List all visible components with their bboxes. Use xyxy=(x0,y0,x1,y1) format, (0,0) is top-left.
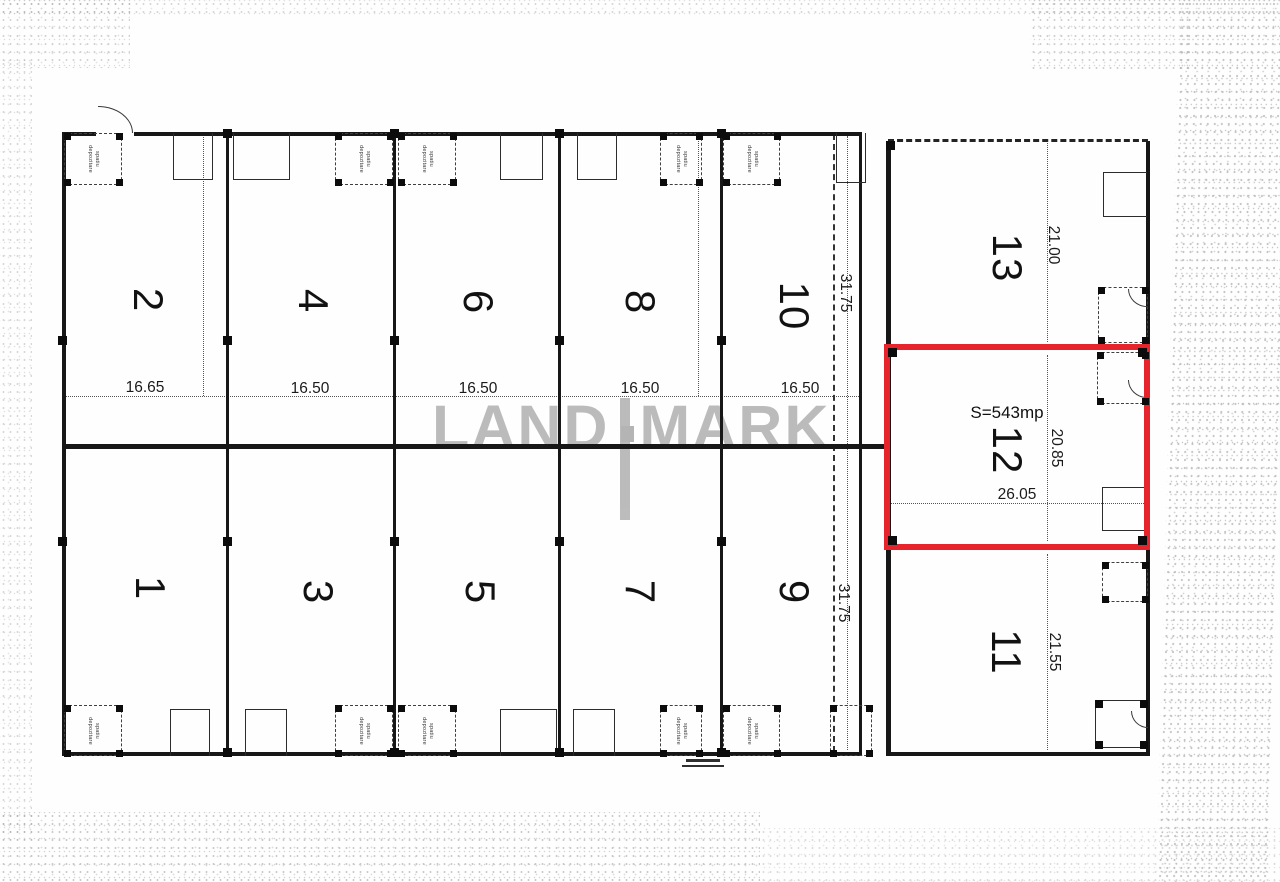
column-pillar xyxy=(390,336,399,345)
watermark-word-mark: MARK xyxy=(639,392,830,462)
storage-box: spatiudepozitare xyxy=(398,705,456,756)
storage-box xyxy=(830,705,872,756)
unit-label-4: 4 xyxy=(289,289,337,313)
wall-segment xyxy=(62,444,886,449)
column-pillar xyxy=(717,537,726,546)
column-pillar xyxy=(1142,562,1149,569)
unit-label-7: 7 xyxy=(616,580,664,604)
storage-box-tiny-label: spatiudepozitare xyxy=(674,145,688,173)
dim-bay-width-3: 16.50 xyxy=(459,380,498,398)
dimension-line-vertical xyxy=(847,136,848,750)
column-pillar xyxy=(64,133,71,140)
column-pillar xyxy=(450,179,457,186)
column-pillar xyxy=(450,750,457,757)
unit-label-1: 1 xyxy=(126,576,174,600)
landmark-watermark: LAND MARK xyxy=(432,392,830,520)
door-recess-box xyxy=(233,133,290,180)
column-pillar xyxy=(58,537,67,546)
door-recess-box xyxy=(836,133,866,183)
storage-box: spatiudepozitare xyxy=(723,705,780,756)
column-pillar xyxy=(866,705,873,712)
watermark-word-land: LAND xyxy=(432,392,609,462)
storage-box-tiny-label: spatiudepozitare xyxy=(745,717,759,745)
door-recess-box xyxy=(500,709,557,756)
column-pillar xyxy=(390,748,399,757)
door-recess-box xyxy=(500,133,543,180)
storage-box-tiny-label: spatiudepozitare xyxy=(86,717,100,745)
unit-label-2: 2 xyxy=(124,288,172,312)
column-pillar xyxy=(774,179,781,186)
column-pillar xyxy=(398,705,405,712)
highlighted-unit-outline xyxy=(884,344,1150,550)
door-recess-box xyxy=(577,133,617,180)
column-pillar xyxy=(723,179,730,186)
column-pillar xyxy=(223,336,232,345)
dim-unit11-depth: 21.55 xyxy=(1045,633,1063,672)
column-pillar xyxy=(717,748,726,757)
column-pillar xyxy=(555,129,564,138)
door-recess-box xyxy=(573,709,615,756)
wall-segment xyxy=(558,132,561,446)
storage-box-tiny-label: spatiudepozitare xyxy=(674,717,688,745)
column-pillar xyxy=(116,133,123,140)
column-pillar xyxy=(1095,700,1103,708)
column-pillar xyxy=(774,133,781,140)
column-pillar xyxy=(390,537,399,546)
column-pillar xyxy=(774,705,781,712)
column-pillar xyxy=(1095,741,1103,749)
unit-label-11: 11 xyxy=(982,629,1030,675)
column-pillar xyxy=(1138,348,1147,357)
dim-bay-width-2: 16.50 xyxy=(291,380,330,398)
dim-bay-width-5: 16.50 xyxy=(781,380,820,398)
column-pillar xyxy=(1102,596,1109,603)
column-pillar xyxy=(335,133,342,140)
wall-segment xyxy=(886,752,1149,756)
column-pillar xyxy=(398,179,405,186)
column-pillar xyxy=(555,336,564,345)
column-pillar xyxy=(390,129,399,138)
column-pillar xyxy=(335,750,342,757)
storage-box: spatiudepozitare xyxy=(64,133,122,185)
column-pillar xyxy=(1142,398,1149,405)
watermark-divider-bar xyxy=(620,398,630,520)
column-pillar xyxy=(696,133,703,140)
storage-box-tiny-label: spatiudepozitare xyxy=(86,145,100,173)
column-pillar xyxy=(387,179,394,186)
dim-unit13-depth: 21.00 xyxy=(1044,226,1062,265)
unit-label-5: 5 xyxy=(456,580,504,604)
column-pillar xyxy=(696,750,703,757)
dim-bay-width-4: 16.50 xyxy=(621,380,660,398)
column-pillar xyxy=(1097,398,1104,405)
column-pillar xyxy=(1138,536,1147,545)
column-pillar xyxy=(1142,337,1149,344)
door-recess-box xyxy=(245,709,287,756)
column-pillar xyxy=(223,129,232,138)
column-pillar xyxy=(1098,287,1105,294)
unit-label-13: 13 xyxy=(983,234,1031,283)
column-pillar xyxy=(660,133,667,140)
column-pillar xyxy=(387,705,394,712)
column-pillar xyxy=(116,179,123,186)
wall-segment xyxy=(226,446,229,756)
column-pillar xyxy=(886,141,895,150)
unit-label-9: 9 xyxy=(770,580,818,604)
column-pillar xyxy=(717,336,726,345)
column-pillar xyxy=(1140,741,1148,749)
column-pillar xyxy=(866,750,873,757)
column-pillar xyxy=(335,705,342,712)
column-pillar xyxy=(116,705,123,712)
corridor-wall-line xyxy=(833,134,835,752)
column-pillar xyxy=(1140,700,1148,708)
tiny-annotation-underline xyxy=(682,765,724,767)
column-pillar xyxy=(58,336,67,345)
watermark-divider-dot xyxy=(621,426,634,442)
unit-label-8: 8 xyxy=(616,290,664,314)
door-swing-arc xyxy=(98,106,133,133)
column-pillar xyxy=(660,179,667,186)
column-pillar xyxy=(696,179,703,186)
floor-plan-drawing: LAND MARK 2 4 6 8 10 1 3 5 7 9 13 12 11 … xyxy=(0,0,1280,882)
column-pillar xyxy=(64,705,71,712)
unit-label-10: 10 xyxy=(770,282,818,331)
column-pillar xyxy=(723,705,730,712)
dim-bay-width-1: 16.65 xyxy=(126,379,165,397)
scanned-floorplan-page: LAND MARK 2 4 6 8 10 1 3 5 7 9 13 12 11 … xyxy=(0,0,1280,882)
tiny-annotation-smudge xyxy=(686,759,720,762)
column-pillar xyxy=(888,348,897,357)
column-pillar xyxy=(450,133,457,140)
column-pillar xyxy=(1142,596,1149,603)
unit-label-6: 6 xyxy=(454,290,502,314)
column-pillar xyxy=(660,705,667,712)
column-pillar xyxy=(696,705,703,712)
storage-box-tiny-label: spatiudepozitare xyxy=(745,145,759,173)
column-pillar xyxy=(335,179,342,186)
column-pillar xyxy=(1098,337,1105,344)
column-pillar xyxy=(223,537,232,546)
column-pillar xyxy=(888,536,897,545)
column-pillar xyxy=(830,750,837,757)
storage-box-tiny-label: spatiudepozitare xyxy=(357,717,371,745)
storage-box: spatiudepozitare xyxy=(398,133,456,185)
column-pillar xyxy=(64,750,71,757)
column-pillar xyxy=(1142,287,1149,294)
wall-segment-dashed xyxy=(888,139,1148,142)
column-pillar xyxy=(1097,352,1104,359)
column-pillar xyxy=(717,129,726,138)
wall-segment xyxy=(226,132,229,446)
column-pillar xyxy=(64,179,71,186)
storage-box-tiny-label: spatiudepozitare xyxy=(420,717,434,745)
door-recess-box xyxy=(170,709,210,756)
column-pillar xyxy=(223,748,232,757)
column-pillar xyxy=(774,750,781,757)
door-recess-box xyxy=(1103,172,1147,217)
storage-box: spatiudepozitare xyxy=(335,705,393,756)
storage-box: spatiudepozitare xyxy=(723,133,780,185)
storage-box: spatiudepozitare xyxy=(64,705,122,756)
column-pillar xyxy=(555,537,564,546)
column-pillar xyxy=(555,748,564,757)
storage-box: spatiudepozitare xyxy=(335,133,393,185)
storage-box-tiny-label: spatiudepozitare xyxy=(420,145,434,173)
column-pillar xyxy=(116,750,123,757)
dim-corridor-top: 31.75 xyxy=(836,274,854,313)
storage-box: spatiudepozitare xyxy=(660,133,702,185)
storage-box-tiny-label: spatiudepozitare xyxy=(357,145,371,173)
unit-label-3: 3 xyxy=(294,580,342,604)
door-recess-box xyxy=(173,133,213,180)
column-pillar xyxy=(830,705,837,712)
wall-segment xyxy=(558,446,561,756)
column-pillar xyxy=(450,705,457,712)
column-pillar xyxy=(660,750,667,757)
dim-corridor-bottom: 31.75 xyxy=(834,584,852,623)
column-pillar xyxy=(1102,562,1109,569)
storage-box: spatiudepozitare xyxy=(660,705,702,756)
